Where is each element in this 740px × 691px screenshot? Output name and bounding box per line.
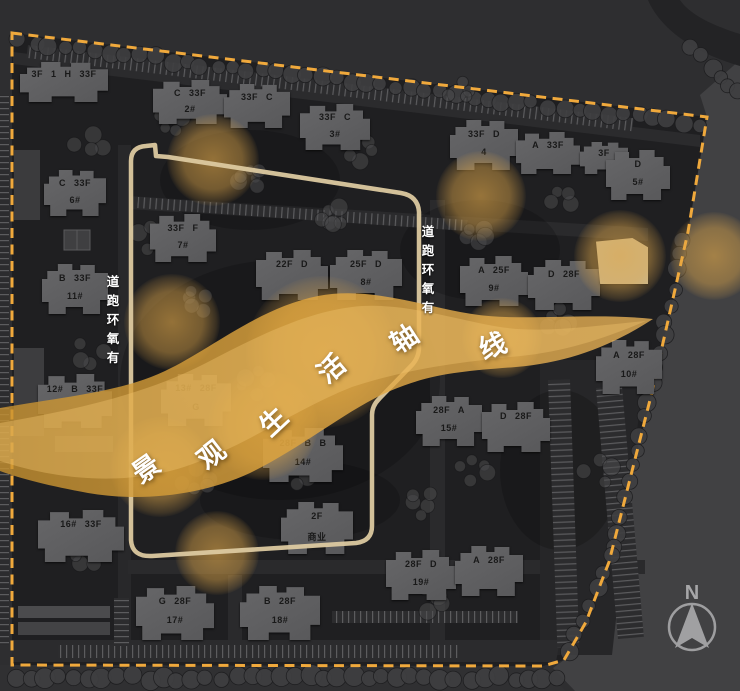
building-label-number: 5# bbox=[606, 177, 670, 187]
building-label-number: 2# bbox=[153, 104, 227, 114]
building-block: 28F A15# bbox=[416, 396, 482, 446]
buildings-layer: 3F 1 H 33FC 33F2#33F C33F C3#33F D4A 33F… bbox=[0, 0, 740, 691]
building-label-type-floors: C 33F bbox=[153, 88, 227, 98]
building-label-number: 商业 bbox=[281, 530, 353, 543]
building-label-type-floors: 33F D bbox=[450, 129, 518, 139]
building-label-type-floors: A 25F bbox=[460, 265, 528, 275]
building-block: 3F 1 H 33F bbox=[20, 62, 108, 102]
building-block: B 33F11# bbox=[42, 264, 108, 314]
building-block: 33F F7# bbox=[150, 214, 216, 262]
building-label-type-floors: 13# 28F bbox=[161, 383, 231, 393]
building-label-type-floors: 33F F bbox=[150, 223, 216, 233]
building-label-type-floors: G 28F bbox=[136, 596, 214, 606]
building-label-type-floors: D 28F bbox=[482, 411, 550, 421]
building-label-type-floors: A 28F bbox=[596, 350, 662, 360]
building-label-type-floors: B 33F bbox=[42, 273, 108, 283]
building-label-number: 11# bbox=[42, 291, 108, 301]
building-label-number: 17# bbox=[136, 615, 214, 625]
building-label-type-floors: C 33F bbox=[44, 178, 106, 188]
building-block: A 33F bbox=[516, 132, 580, 174]
building-block: A 25F9# bbox=[460, 256, 528, 306]
building-label-number: 7# bbox=[150, 240, 216, 250]
kindergarten-building bbox=[596, 238, 648, 284]
building-label-type-floors: 22F D bbox=[256, 259, 328, 269]
building-label-number: 15# bbox=[416, 423, 482, 433]
building-label-type-floors: 33F C bbox=[300, 112, 370, 122]
building-label-number: 10# bbox=[596, 369, 662, 379]
building-label-type-floors: A 33F bbox=[516, 140, 580, 150]
building-block: C 33F2# bbox=[153, 80, 227, 124]
building-label-number: G bbox=[161, 402, 231, 412]
building-block: A 28F bbox=[455, 546, 523, 596]
building-label-number: 6# bbox=[44, 195, 106, 205]
building-label-type-floors: A 28F bbox=[455, 555, 523, 565]
building-block: 28F D19# bbox=[386, 550, 456, 600]
building-label-number: 3# bbox=[300, 129, 370, 139]
site-plan-canvas: N 3F 1 H 33FC 33F2#33F C33F C3#33F D4A 3… bbox=[0, 0, 740, 691]
building-label-number: 14# bbox=[263, 457, 343, 467]
building-label-type-floors: D bbox=[606, 159, 670, 169]
building-label-number: 4 bbox=[450, 147, 518, 157]
building-label-type-floors: 25F D bbox=[330, 259, 402, 269]
building-block: A 28F10# bbox=[596, 340, 662, 394]
building-block: 2F商业 bbox=[281, 502, 353, 554]
building-block: B 28F18# bbox=[240, 586, 320, 640]
building-label-number: 8# bbox=[330, 277, 402, 287]
building-block: 33F D4 bbox=[450, 120, 518, 170]
building-label-type-floors: B 28F bbox=[240, 596, 320, 606]
building-label-type-floors: 28F B B bbox=[263, 438, 343, 448]
building-label-number: 9# bbox=[460, 283, 528, 293]
building-block: C 33F6# bbox=[44, 170, 106, 216]
building-block: 25F D8# bbox=[330, 250, 402, 300]
building-label-type-floors: 12# B 33F bbox=[38, 384, 112, 394]
building-label-type-floors: 28F D bbox=[386, 559, 456, 569]
building-block: D5# bbox=[606, 150, 670, 200]
building-block: G 28F17# bbox=[136, 586, 214, 640]
building-label-number: 19# bbox=[386, 577, 456, 587]
building-label-type-floors: 3F 1 H 33F bbox=[20, 69, 108, 79]
building-label-type-floors: D 28F bbox=[528, 269, 600, 279]
building-block: 16# 33F bbox=[38, 510, 124, 562]
building-block: 33F C3# bbox=[300, 104, 370, 150]
building-label-number: 18# bbox=[240, 615, 320, 625]
building-block: 28F B B14# bbox=[263, 428, 343, 482]
building-block: 12# B 33F bbox=[38, 374, 112, 428]
building-block: 13# 28FG bbox=[161, 374, 231, 426]
building-block: 33F C bbox=[224, 84, 290, 128]
building-block: D 28F bbox=[528, 260, 600, 310]
building-block: 22F D bbox=[256, 250, 328, 300]
building-block: D 28F bbox=[482, 402, 550, 452]
building-label-type-floors: 28F A bbox=[416, 405, 482, 415]
building-label-type-floors: 2F bbox=[281, 511, 353, 521]
building-label-type-floors: 33F C bbox=[224, 92, 290, 102]
building-label-type-floors: 16# 33F bbox=[38, 519, 124, 529]
